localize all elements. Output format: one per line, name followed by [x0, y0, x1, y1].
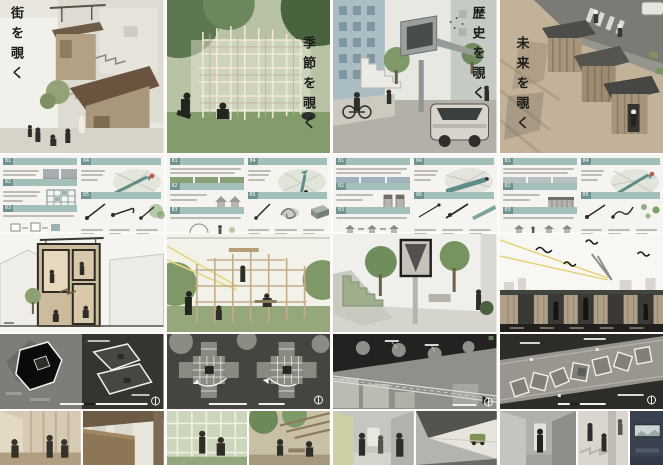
section-number: 03: [336, 207, 346, 214]
dome-figure-sketch: [170, 222, 244, 234]
info-band-mirai: 01 02 03: [500, 155, 663, 232]
section-header-bar: [346, 207, 410, 214]
section-illustration-mirai: [500, 234, 663, 332]
section-number: 03: [3, 205, 13, 212]
slot-window-photo: [630, 411, 663, 465]
section-number: 01: [3, 158, 13, 165]
section-header-bar: [591, 158, 660, 165]
site-plan-drawing-machi: [0, 334, 164, 409]
section-number: 03: [170, 207, 180, 214]
section-number: 02: [503, 183, 513, 190]
element-diagram: [414, 201, 439, 238]
section-header-bar: [13, 179, 77, 186]
passage-photo: [500, 411, 576, 465]
lattice-interior-illustration: [167, 411, 248, 465]
wavy-line-icon: [608, 201, 638, 221]
interior-photo-illustration: [0, 411, 81, 465]
element-diagram: [608, 201, 633, 238]
pin-diagram-icon: [81, 201, 111, 221]
info-block: 05: [581, 192, 660, 229]
section-number: 05: [248, 192, 258, 199]
section-number: 01: [336, 158, 346, 165]
info-block: 04: [581, 158, 660, 189]
info-block: 01: [170, 158, 244, 180]
section-number: 02: [170, 183, 180, 190]
section-header-bar: [13, 158, 77, 165]
periscope-view-illustration: [416, 411, 497, 465]
pin-diagram-icon: [109, 201, 139, 221]
lattice-interior-photo: [167, 411, 248, 465]
section-number: 02: [336, 183, 346, 190]
pergola-illustration: [249, 411, 330, 465]
corridor-photo: [333, 411, 414, 465]
section-number: 05: [581, 192, 591, 199]
info-block: 02: [503, 183, 577, 204]
section-header-bar: [258, 158, 327, 165]
section-illustration-rekishi: [333, 234, 497, 332]
section-number: 05: [81, 192, 91, 199]
pin-diagram-icon: [414, 201, 444, 221]
section-number: 03: [503, 207, 513, 214]
section-header-bar: [424, 158, 493, 165]
panel-title-rekishi: 歴史を覗く: [468, 6, 487, 106]
element-diagram: [581, 201, 606, 238]
site-plan-drawing-kisetsu: [167, 334, 331, 409]
info-block: 01: [503, 158, 577, 180]
info-block: 04: [81, 158, 160, 189]
section-number: 02: [3, 179, 13, 186]
info-block: 03: [503, 207, 577, 229]
section-header-bar: [346, 158, 410, 165]
section-number: 04: [581, 158, 591, 165]
section-number: 05: [414, 192, 424, 199]
section-render-kisetsu: [167, 234, 331, 332]
element-diagram: [109, 201, 134, 238]
section-header-bar: [513, 183, 577, 190]
element-diagram: [136, 201, 161, 238]
section-illustration-machi: [0, 234, 164, 332]
hero-render-machi: 街を覗く: [0, 0, 164, 153]
site-plan-kisetsu: [167, 334, 331, 409]
section-header-bar: [346, 183, 410, 190]
info-block: 01: [336, 158, 410, 180]
panel-title-kisetsu: 季節を覗く: [298, 36, 317, 136]
section-number: 04: [248, 158, 258, 165]
site-plan-rekishi: [333, 334, 497, 409]
passage-illustration: [500, 411, 576, 465]
isometric-box-icon: [303, 201, 333, 221]
section-number: 01: [170, 158, 180, 165]
element-diagram: [636, 201, 661, 238]
section-header-bar: [91, 192, 160, 199]
photo-strip-kisetsu: [167, 411, 331, 465]
hero-render-kisetsu: 季節を覗く: [167, 0, 331, 153]
panel-machi: 街を覗く 01 02: [0, 0, 164, 465]
element-diagram: [275, 201, 300, 238]
pin-diagram-icon: [248, 201, 278, 221]
balcony-photo: [83, 411, 164, 465]
section-number: 04: [81, 158, 91, 165]
element-diagram: [81, 201, 106, 238]
pin-diagram-icon: [442, 201, 472, 221]
info-band-rekishi: 01 02 03: [333, 155, 497, 232]
section-header-bar: [513, 207, 577, 214]
section-render-mirai: [500, 234, 663, 332]
photo-strip-machi: [0, 411, 164, 465]
interior-photo: [0, 411, 81, 465]
hero-render-mirai: 未来を覗く: [500, 0, 663, 153]
coil-diagram-icon: [275, 201, 305, 221]
site-plan-drawing-mirai: [500, 334, 663, 409]
section-header-bar: [258, 192, 327, 199]
photo-strip-rekishi: [333, 411, 497, 465]
hero-render-rekishi: 歴史を覗く: [333, 0, 497, 153]
panel-mirai: 未来を覗く 01 02: [500, 0, 663, 465]
element-diagram: [442, 201, 467, 238]
info-block: 04: [414, 158, 493, 189]
info-band-machi: 01 02 03: [0, 155, 164, 232]
stair-slot-photo: [578, 411, 628, 465]
section-header-bar: [424, 192, 493, 199]
panel-title-machi: 街を覗く: [6, 6, 25, 86]
section-header-bar: [91, 158, 160, 165]
site-plan-drawing-rekishi: [333, 334, 497, 409]
info-block: 05: [81, 192, 160, 229]
element-diagram: [248, 201, 273, 238]
section-number: 04: [414, 158, 424, 165]
element-diagram: [469, 201, 494, 238]
corridor-illustration: [333, 411, 414, 465]
stair-slot-illustration: [578, 411, 628, 465]
periscope-view-photo: [416, 411, 497, 465]
section-header-bar: [13, 205, 77, 212]
hut-row-sketch: [336, 222, 410, 234]
info-block: 03: [336, 207, 410, 229]
section-header-bar: [180, 183, 244, 190]
info-block: 02: [336, 183, 410, 204]
green-dots-icon: [636, 201, 663, 221]
site-plan-mirai: [500, 334, 663, 409]
section-header-bar: [180, 207, 244, 214]
presentation-board: 街を覗く 01 02: [0, 0, 663, 465]
site-plan-machi: [0, 334, 164, 409]
slot-window-illustration: [630, 411, 663, 465]
panel-rekishi: 歴史を覗く 01 02 03: [333, 0, 497, 465]
info-block: 05: [414, 192, 493, 229]
info-block: 01: [3, 158, 77, 176]
pergola-photo: [249, 411, 330, 465]
info-block: 04: [248, 158, 327, 189]
greenery-pin-icon: [136, 201, 166, 221]
section-number: 01: [503, 158, 513, 165]
section-header-bar: [591, 192, 660, 199]
panel-title-mirai: 未来を覗く: [512, 36, 531, 136]
hut-row-sketch: [503, 222, 577, 234]
info-block: 02: [3, 179, 77, 202]
section-render-machi: [0, 234, 164, 332]
info-block: 03: [170, 207, 244, 229]
section-header-bar: [513, 158, 577, 165]
hut-row-sketch: [3, 220, 77, 232]
info-block: 05: [248, 192, 327, 229]
balcony-photo-illustration: [83, 411, 164, 465]
section-render-rekishi: [333, 234, 497, 332]
teal-beam-icon: [469, 201, 499, 221]
element-diagram: [303, 201, 328, 238]
info-block: 02: [170, 183, 244, 204]
section-illustration-kisetsu: [167, 234, 331, 332]
panel-kisetsu: 季節を覗く 01 02 03: [167, 0, 331, 465]
section-header-bar: [180, 158, 244, 165]
info-block: 03: [3, 205, 77, 229]
info-band-kisetsu: 01 02 03: [167, 155, 331, 232]
pin-diagram-icon: [581, 201, 611, 221]
photo-strip-mirai: [500, 411, 663, 465]
